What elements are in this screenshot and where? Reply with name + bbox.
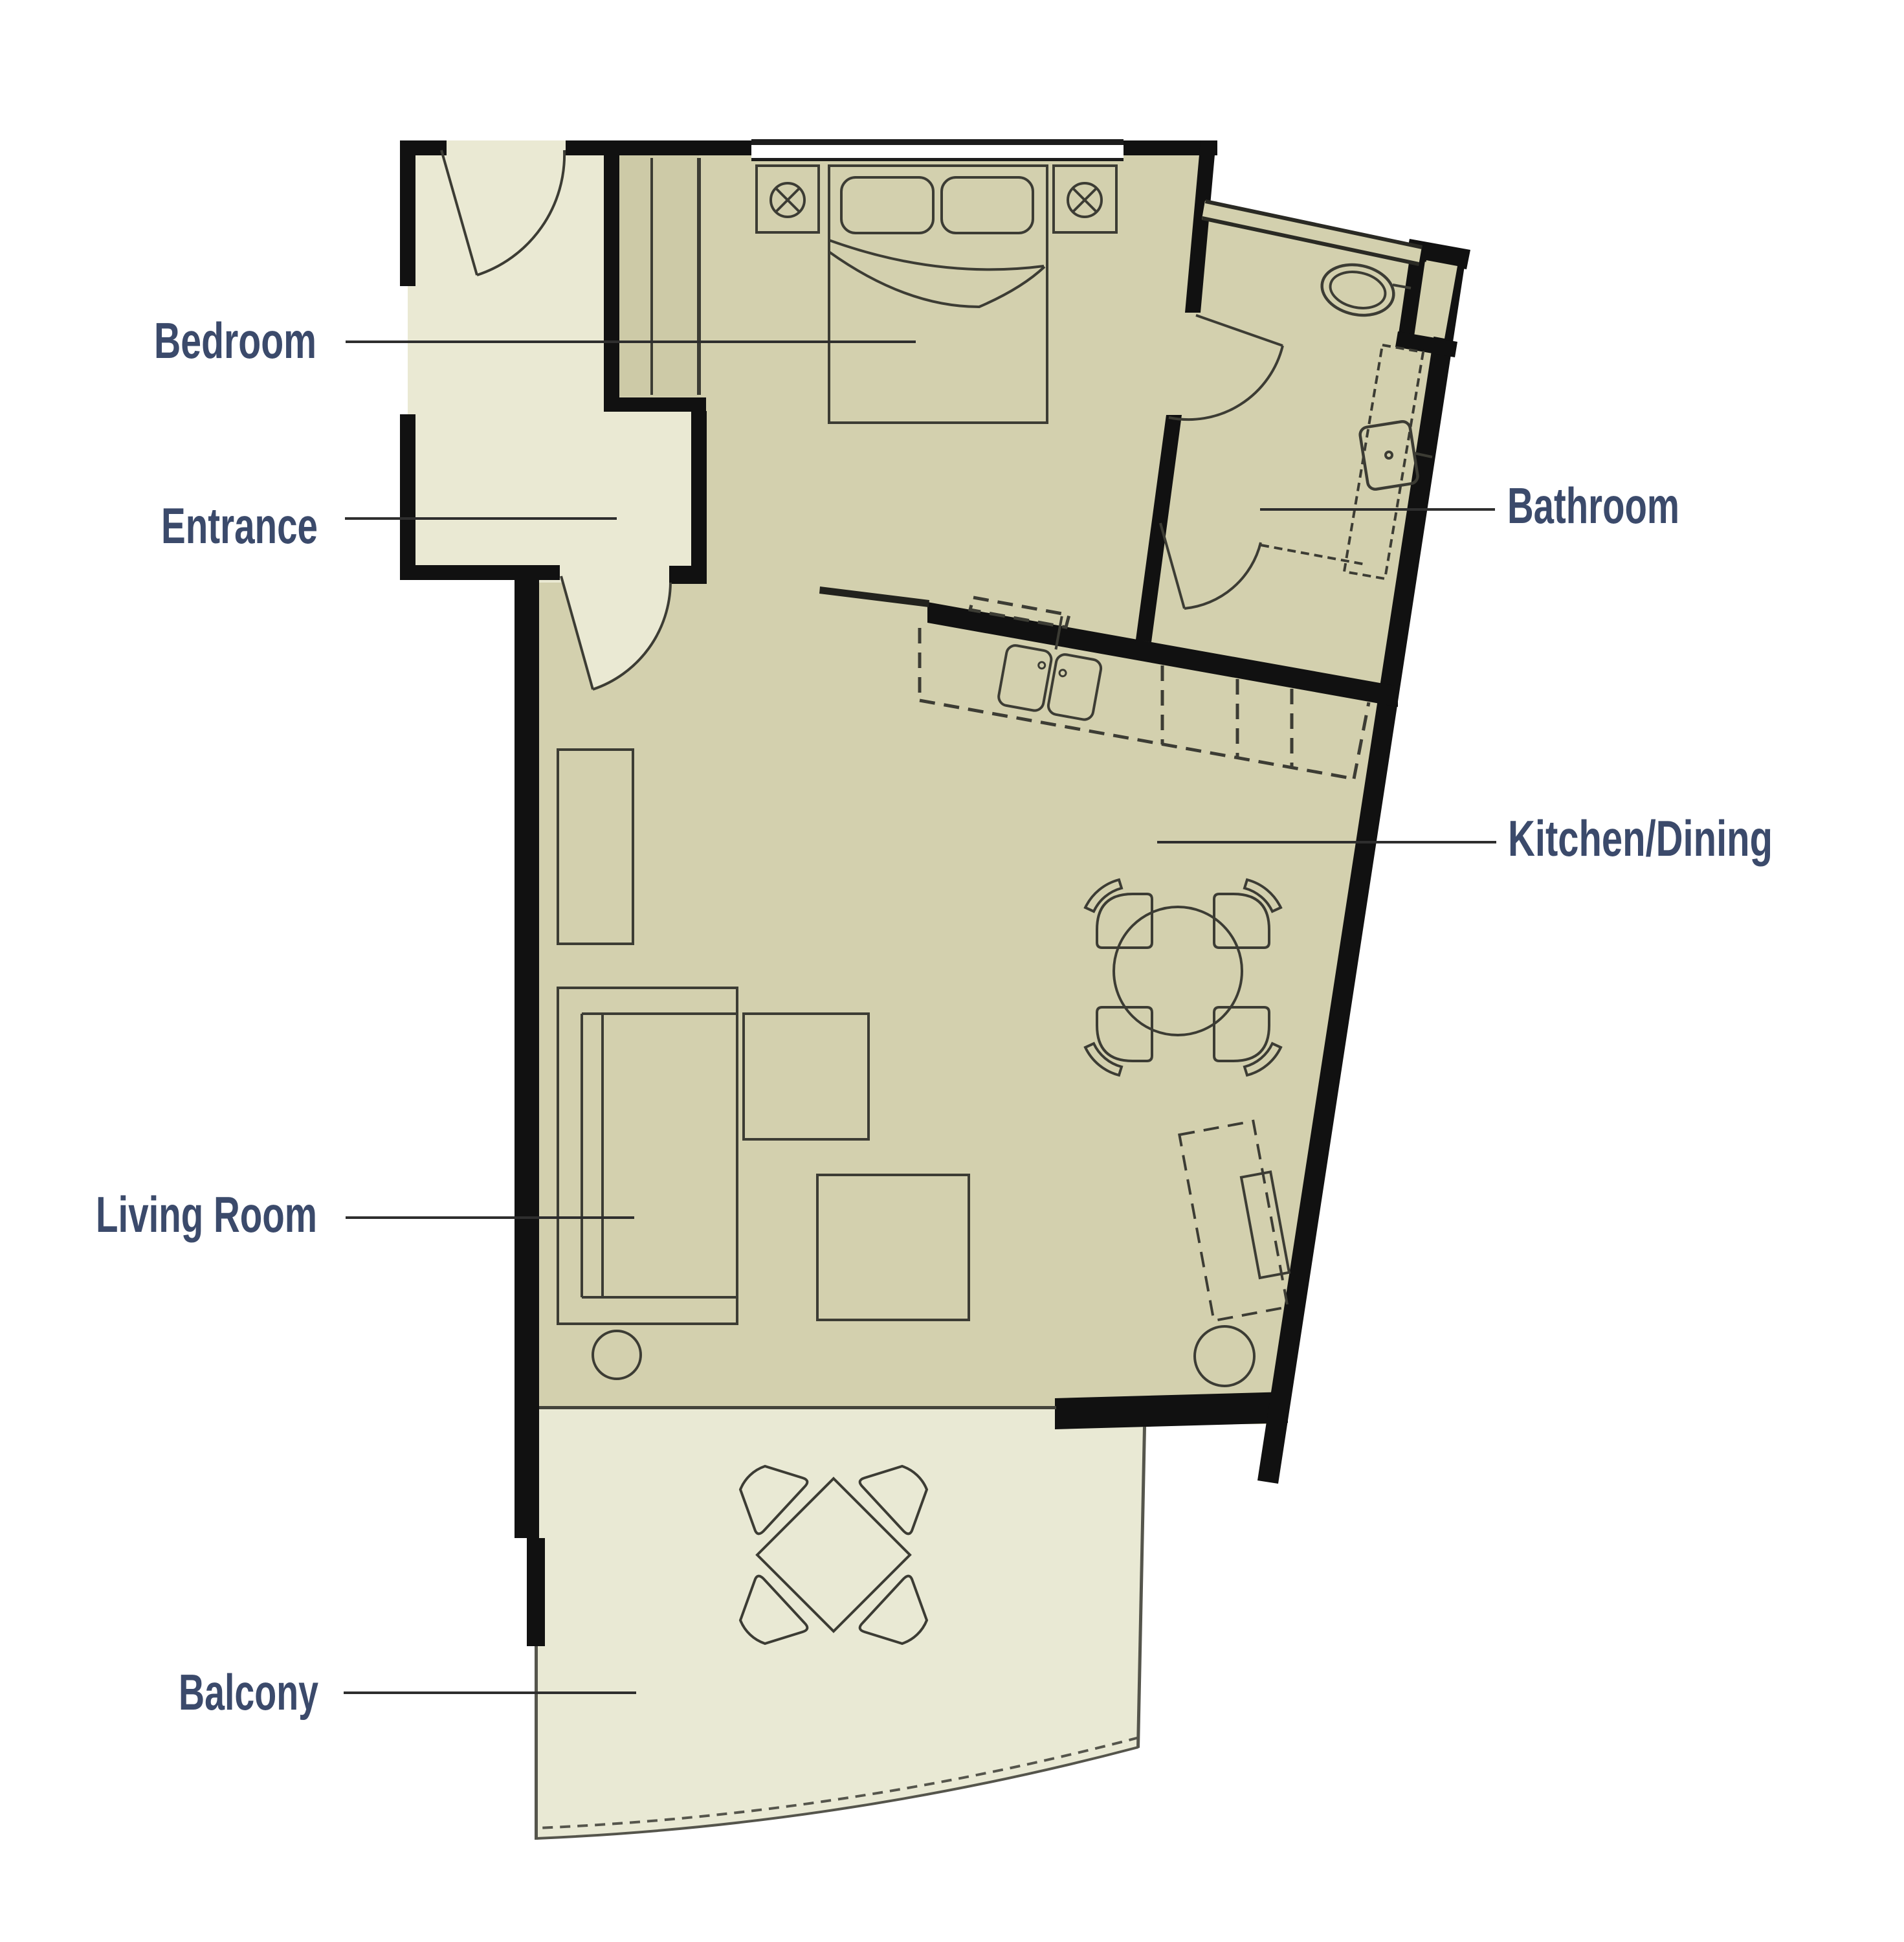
svg-text:Living Room: Living Room (96, 1186, 317, 1243)
svg-text:Bedroom: Bedroom (154, 312, 316, 369)
svg-text:Bathroom: Bathroom (1507, 477, 1679, 534)
svg-text:Entrance: Entrance (161, 497, 318, 554)
svg-text:Kitchen/Dining: Kitchen/Dining (1508, 810, 1773, 867)
svg-text:Balcony: Balcony (179, 1664, 318, 1721)
